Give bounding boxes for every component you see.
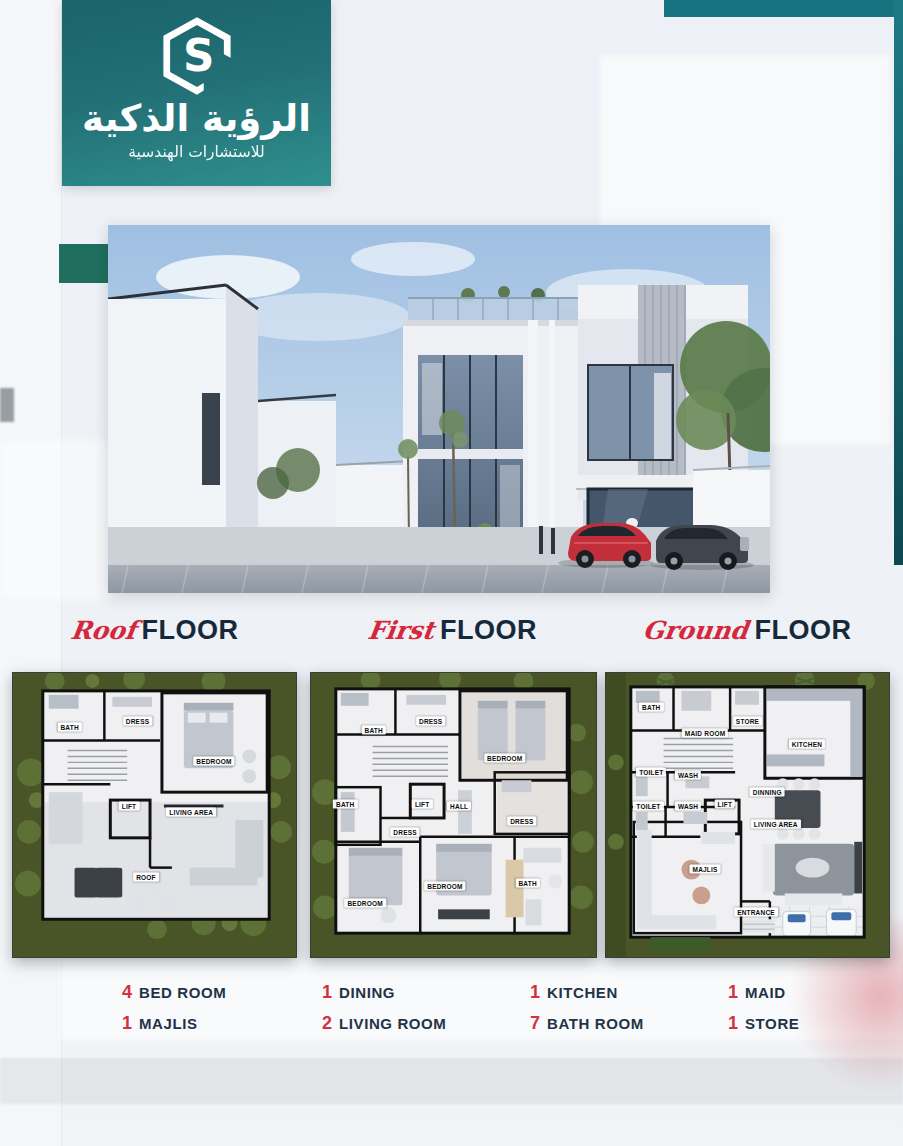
room-label: ENTRANCE [734,907,778,916]
teal-top-band [664,0,895,17]
room-label: ROOF [133,873,159,882]
stat-item: 1MAJLIS [122,1013,226,1034]
stat-count: 2 [322,1013,332,1034]
room-label: KITCHEN [789,740,825,749]
room-label: BEDROOM [484,754,525,763]
stat-count: 7 [530,1013,540,1034]
room-label: DRESS [390,828,419,837]
room-label: DRESS [416,717,445,726]
first-floor-title: First FLOOR [310,608,595,652]
stats-row: 4BED ROOM1MAJLIS1DINING2LIVING ROOM1KITC… [0,982,903,1052]
room-label: BATH [333,799,357,808]
background-faded-curb [0,1058,903,1104]
room-label: BEDROOM [193,757,234,766]
stat-label: MAJLIS [139,1015,198,1032]
room-label: HALL [447,802,471,811]
first-floor-word: FLOOR [440,615,537,646]
stat-item: 2LIVING ROOM [322,1013,446,1034]
stats-column: 1DINING2LIVING ROOM [322,982,446,1034]
stat-item: 4BED ROOM [122,982,226,1003]
green-accent-square [59,244,108,283]
room-label: BEDROOM [424,882,465,891]
stat-item: 1DINING [322,982,446,1003]
room-label: DRESS [507,816,536,825]
stats-column: 1MAID1STORE [728,982,799,1034]
stat-count: 1 [728,982,738,1003]
first-floor-plan: BATHDRESSBEDROOMBATHLIFTHALLDRESSDRESSBE… [310,672,597,958]
room-label: BATH [639,703,663,712]
stat-item: 7BATH ROOM [530,1013,644,1034]
room-label: WASH [675,802,701,811]
room-label: LIFT [119,802,140,811]
company-name-arabic: الرؤية الذكية [82,100,311,137]
stat-label: STORE [745,1015,799,1032]
stat-item: 1STORE [728,1013,799,1034]
roof-floor-title: Roof FLOOR [12,608,297,652]
stat-count: 4 [122,982,132,1003]
stat-label: DINING [339,984,395,1001]
room-label: TOILET [633,802,663,811]
stat-count: 1 [322,982,332,1003]
room-label: STORE [733,717,762,726]
stat-label: KITCHEN [547,984,618,1001]
background-faded-window [0,388,14,422]
room-label: LIFT [715,799,736,808]
stat-count: 1 [122,1013,132,1034]
villa-exterior-render [108,225,770,593]
room-label: LIVING AREA [166,808,216,817]
room-label: BATH [57,722,81,731]
stat-label: MAID [745,984,786,1001]
stat-item: 1MAID [728,982,799,1003]
roof-floor-word: FLOOR [141,615,238,646]
company-tagline-arabic: للاستشارات الهندسية [128,143,264,161]
ground-floor-plan: BATHMAID ROOMSTOREKITCHENTOILETWASHTOILE… [605,672,890,958]
room-label: DINNING [750,788,785,797]
stat-count: 1 [728,1013,738,1034]
room-label: LIFT [412,799,433,808]
room-label: BEDROOM [344,899,385,908]
stat-label: BED ROOM [139,984,226,1001]
roof-script-word: Roof [69,616,140,645]
room-label: BATH [515,879,539,888]
stat-label: BATH ROOM [547,1015,644,1032]
room-label: BATH [362,725,386,734]
room-label: DRESS [123,717,152,726]
roof-floor-plan: BATHDRESSBEDROOMLIFTLIVING AREAROOF [12,672,297,958]
hexagon-s-logo-icon: S [155,14,239,98]
room-label: MAID ROOM [682,728,728,737]
company-logo-block: S الرؤية الذكية للاستشارات الهندسية [62,0,331,186]
ground-script-word: Ground [641,616,752,645]
stats-column: 4BED ROOM1MAJLIS [122,982,226,1034]
poster: S الرؤية الذكية للاستشارات الهندسية [0,0,903,1146]
stat-count: 1 [530,982,540,1003]
room-label: WASH [675,771,701,780]
ground-floor-word: FLOOR [755,615,852,646]
room-label: LIVING AREA [751,819,801,828]
first-script-word: First [366,616,438,645]
svg-text:S: S [182,30,213,81]
room-label: MAJLIS [690,864,721,873]
teal-right-strip [894,0,903,565]
stats-column: 1KITCHEN7BATH ROOM [530,982,644,1034]
stat-item: 1KITCHEN [530,982,644,1003]
room-label: TOILET [636,768,666,777]
ground-floor-title: Ground FLOOR [605,608,890,652]
stat-label: LIVING ROOM [339,1015,446,1032]
